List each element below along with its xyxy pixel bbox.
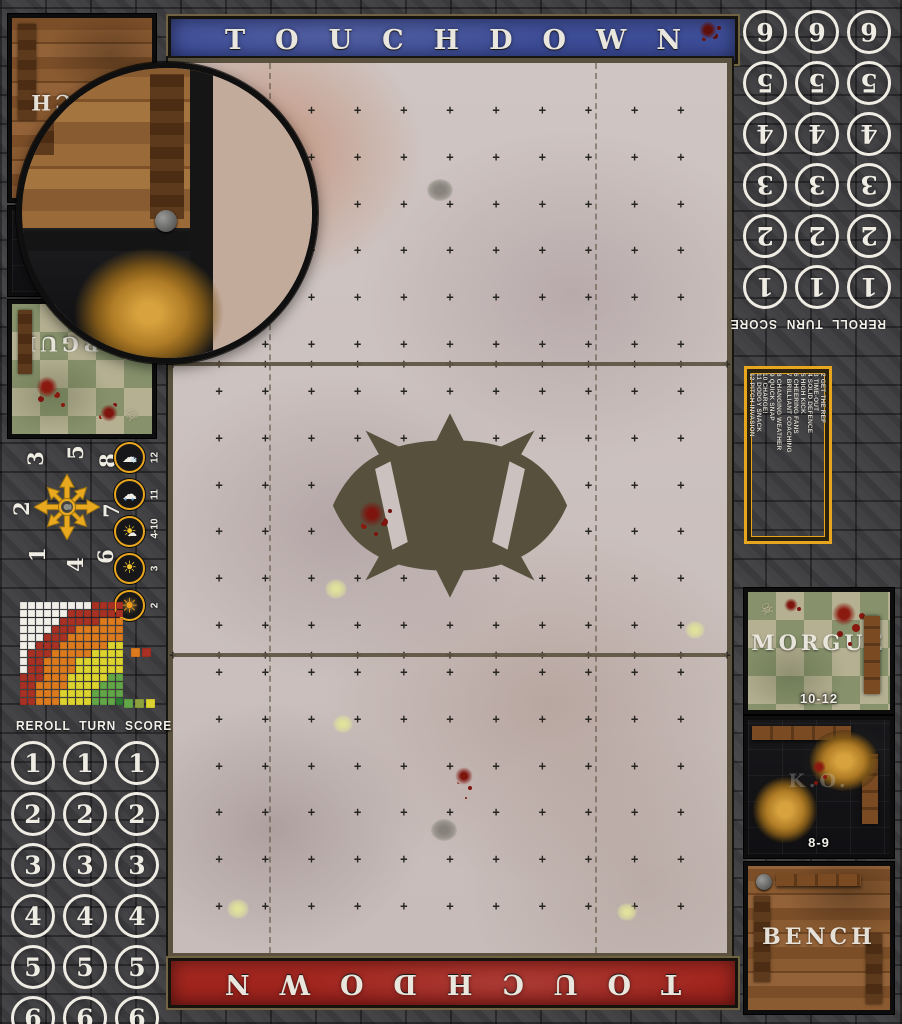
pass-range-cell xyxy=(116,642,123,649)
grid-cross: + xyxy=(631,760,638,772)
grid-cross: + xyxy=(354,760,361,772)
pass-range-cell xyxy=(52,618,59,625)
legend-swatch xyxy=(135,699,144,708)
tracker-circle-1: 1 xyxy=(63,741,107,785)
pass-range-cell xyxy=(116,626,123,633)
grid-cross: + xyxy=(216,853,223,865)
grid-cross: + xyxy=(539,338,546,350)
lichen-spot xyxy=(685,621,705,639)
pass-range-cell xyxy=(36,610,43,617)
blood-splat xyxy=(812,760,826,774)
grid-cross: + xyxy=(631,713,638,725)
tracker-circle-3: 3 xyxy=(795,163,839,207)
pass-range-cell xyxy=(108,682,115,689)
legend-swatch xyxy=(131,648,140,657)
pass-range-cell xyxy=(68,698,75,705)
kickoff-entry: 9 QUICK SNAP xyxy=(767,373,774,537)
grid-cross: + xyxy=(216,806,223,818)
pass-range-cell xyxy=(36,634,43,641)
pass-range-cell xyxy=(60,698,67,705)
pass-range-cell xyxy=(92,666,99,673)
stone-mark xyxy=(431,819,457,841)
pass-range-cell xyxy=(28,634,35,641)
grid-cross: + xyxy=(493,338,500,350)
pass-range-cell xyxy=(100,690,107,697)
tracker-circle-1: 1 xyxy=(115,741,159,785)
tracker-circle-3: 3 xyxy=(847,163,891,207)
grid-cross: + xyxy=(677,432,684,444)
pass-range-cell xyxy=(76,690,83,697)
pass-range-cell xyxy=(60,666,67,673)
lichen-spot xyxy=(227,899,249,919)
pass-range-cell xyxy=(68,610,75,617)
grid-cross: + xyxy=(677,572,684,584)
grid-cross: + xyxy=(585,666,592,678)
tracker-circle-4: 4 xyxy=(63,894,107,938)
pass-range-cell xyxy=(108,642,115,649)
pass-range-cell xyxy=(68,650,75,657)
grid-cross: + xyxy=(677,151,684,163)
grid-cross: + xyxy=(677,853,684,865)
grid-cross: + xyxy=(585,338,592,350)
pass-range-cell xyxy=(108,690,115,697)
pass-range-cell xyxy=(44,602,51,609)
grid-cross: + xyxy=(446,666,453,678)
grid-cross: + xyxy=(354,244,361,256)
pass-range-cell xyxy=(60,618,67,625)
pass-range-cell xyxy=(20,682,27,689)
grid-cross: + xyxy=(585,525,592,537)
tracker-circle-4: 4 xyxy=(847,112,891,156)
pass-range-cell xyxy=(44,642,51,649)
grid-cross: + xyxy=(585,244,592,256)
pass-range-cell xyxy=(68,634,75,641)
tracker-circle-3: 3 xyxy=(115,843,159,887)
grid-cross: + xyxy=(493,806,500,818)
touchdown-banner-bottom: TOUCHDOWN xyxy=(168,958,738,1008)
pass-range-cell xyxy=(52,642,59,649)
blood-splat xyxy=(455,767,473,785)
ko-right-range: 8-9 xyxy=(748,835,890,850)
weather-row: ☀3 xyxy=(114,553,162,584)
grid-cross: + xyxy=(539,666,546,678)
grid-cross: + xyxy=(308,806,315,818)
grid-cross: + xyxy=(539,385,546,397)
tracker-circle-5: 5 xyxy=(795,61,839,105)
grid-cross: + xyxy=(446,713,453,725)
pass-range-cell xyxy=(84,666,91,673)
pass-range-cell xyxy=(92,682,99,689)
weather-track: ☁❄12☁∙∙11☀☁4-10☀3☀2 xyxy=(114,442,162,621)
pass-range-cell xyxy=(108,650,115,657)
zoom-detail-circle xyxy=(16,62,318,364)
game-mat: TOUCHDOWN ++++++++++++++++++++++++++++++… xyxy=(0,0,902,1024)
legend-swatch xyxy=(146,699,155,708)
tracker-circle-4: 4 xyxy=(115,894,159,938)
pass-range-cell xyxy=(68,602,75,609)
metal-stud-icon xyxy=(756,874,772,890)
tracker-circle-3: 3 xyxy=(63,843,107,887)
pass-range-cell xyxy=(36,650,43,657)
grid-cross: + xyxy=(216,760,223,772)
pass-range-cell xyxy=(84,650,91,657)
pass-range-cell xyxy=(116,634,123,641)
grid-cross: + xyxy=(539,900,546,912)
pass-range-cell xyxy=(84,618,91,625)
snow-cloud-icon: ☁❄ xyxy=(114,442,145,473)
dugout-morgue-right: MORGUE 10-12 ☠ xyxy=(744,588,894,714)
grid-cross: + xyxy=(585,713,592,725)
grid-cross: + xyxy=(631,104,638,116)
pass-range-cell xyxy=(28,690,35,697)
turn-tracker-right-header: REROLL TURN SCORE xyxy=(748,317,886,332)
pass-range-cell xyxy=(28,674,35,681)
pass-range-cell xyxy=(20,658,27,665)
grid-cross: + xyxy=(677,338,684,350)
throw-in-number-4: 4 xyxy=(63,557,88,572)
tracker-circle-3: 3 xyxy=(743,163,787,207)
tracker-circle-5: 5 xyxy=(63,945,107,989)
pass-range-cell xyxy=(100,666,107,673)
tracker-circle-5: 5 xyxy=(743,61,787,105)
pass-range-cell xyxy=(28,682,35,689)
pass-range-cell xyxy=(60,650,67,657)
grid-cross: + xyxy=(216,432,223,444)
pass-range-cell xyxy=(52,658,59,665)
pass-range-cell xyxy=(52,682,59,689)
tracker-circle-1: 1 xyxy=(743,265,787,309)
grid-cross: + xyxy=(631,291,638,303)
kickoff-entry: 7 BRILLIANT COACHING xyxy=(785,373,792,537)
pass-range-cell xyxy=(76,642,83,649)
lichen-spot xyxy=(325,579,347,599)
grid-cross: + xyxy=(493,713,500,725)
dugout-bench-right: BENCH xyxy=(744,862,894,1014)
grid-cross: + xyxy=(216,900,223,912)
sun-icon: ☀ xyxy=(114,553,145,584)
grid-cross: + xyxy=(446,619,453,631)
grid-cross: + xyxy=(539,619,546,631)
pass-range-cell xyxy=(76,610,83,617)
grid-cross: + xyxy=(354,666,361,678)
pass-range-cell xyxy=(68,666,75,673)
grid-cross: + xyxy=(585,291,592,303)
pass-range-cell xyxy=(100,626,107,633)
touchdown-banner-top: TOUCHDOWN xyxy=(168,16,738,64)
grid-cross: + xyxy=(585,853,592,865)
pass-range-cell xyxy=(100,682,107,689)
grid-cross: + xyxy=(308,432,315,444)
pass-range-cell xyxy=(28,610,35,617)
grid-cross: + xyxy=(631,432,638,444)
grid-cross: + xyxy=(539,853,546,865)
grid-cross: + xyxy=(677,760,684,772)
pass-range-cell xyxy=(76,698,83,705)
pass-range-cell xyxy=(84,698,91,705)
kickoff-event-lines: 2 GET THE REF3 TIME-OUT4 SOLID DEFENCE5 … xyxy=(751,373,825,537)
grid-cross: + xyxy=(493,900,500,912)
grid-cross: + xyxy=(539,760,546,772)
pass-range-cell xyxy=(44,618,51,625)
pass-range-cell xyxy=(100,610,107,617)
blood-splat xyxy=(784,598,798,612)
grid-cross: + xyxy=(400,760,407,772)
pass-range-cell xyxy=(52,626,59,633)
pass-range-cell xyxy=(28,642,35,649)
grid-cross: + xyxy=(677,385,684,397)
grid-cross: + xyxy=(400,338,407,350)
grid-cross: + xyxy=(216,572,223,584)
tracker-circle-6: 6 xyxy=(847,10,891,54)
pass-range-cell xyxy=(36,618,43,625)
tracker-circle-4: 4 xyxy=(743,112,787,156)
turn-tracker-left-circles: 111222333444555666 xyxy=(10,741,160,1024)
grid-cross: + xyxy=(446,806,453,818)
pass-range-cell xyxy=(76,666,83,673)
throw-in-number-5: 5 xyxy=(63,445,88,460)
pass-range-cell xyxy=(28,618,35,625)
pass-range-cell xyxy=(116,690,123,697)
grid-cross: + xyxy=(446,244,453,256)
turn-tracker-left: REROLL TURN SCORE 111222333444555666 xyxy=(10,718,160,1024)
tracker-circle-2: 2 xyxy=(115,792,159,836)
grid-cross: + xyxy=(308,853,315,865)
kickoff-entry: 2 GET THE REF xyxy=(818,373,825,537)
pass-range-cell xyxy=(20,674,27,681)
pass-range-cell xyxy=(60,658,67,665)
grid-cross: + xyxy=(631,198,638,210)
grid-cross: + xyxy=(446,104,453,116)
pass-range-cell xyxy=(20,690,27,697)
grid-cross: + xyxy=(308,713,315,725)
pass-range-cell xyxy=(108,698,115,705)
grid-cross: + xyxy=(446,198,453,210)
grid-cross: + xyxy=(308,385,315,397)
pass-range-cell xyxy=(28,650,35,657)
grid-cross: + xyxy=(585,619,592,631)
pass-range-cell xyxy=(60,602,67,609)
dugout-ko-right: K.O. 8-9 xyxy=(744,716,894,858)
tracker-circle-2: 2 xyxy=(743,214,787,258)
grid-cross: + xyxy=(631,525,638,537)
pass-range-cell xyxy=(60,626,67,633)
grid-cross: + xyxy=(308,666,315,678)
grid-cross: + xyxy=(216,525,223,537)
pass-range-cell xyxy=(20,610,27,617)
weather-row: ☁∙∙11 xyxy=(114,479,162,510)
grid-cross: + xyxy=(631,338,638,350)
pass-range-cell xyxy=(60,642,67,649)
pass-range-cell xyxy=(116,666,123,673)
grid-cross: + xyxy=(400,244,407,256)
pass-range-cell xyxy=(84,642,91,649)
grid-cross: + xyxy=(308,900,315,912)
pass-range-cell xyxy=(100,634,107,641)
grid-cross: + xyxy=(354,104,361,116)
tracker-circle-2: 2 xyxy=(63,792,107,836)
pass-range-cell xyxy=(92,690,99,697)
wood-beam xyxy=(776,874,861,886)
pass-range-cell xyxy=(108,674,115,681)
blood-splat xyxy=(36,376,58,398)
grid-cross: + xyxy=(539,198,546,210)
rain-cloud-icon: ☁∙∙ xyxy=(114,479,145,510)
grid-cross: + xyxy=(631,666,638,678)
grid-cross: + xyxy=(216,619,223,631)
grid-cross: + xyxy=(354,853,361,865)
grid-cross: + xyxy=(216,666,223,678)
pass-range-cell xyxy=(52,698,59,705)
grid-cross: + xyxy=(493,760,500,772)
tracker-circle-2: 2 xyxy=(795,214,839,258)
pass-range-cell xyxy=(44,634,51,641)
grid-cross: + xyxy=(631,479,638,491)
pass-range-cell xyxy=(92,626,99,633)
grid-cross: + xyxy=(308,619,315,631)
grid-cross: + xyxy=(493,666,500,678)
weather-value: 2 xyxy=(150,599,161,613)
pass-range-cell xyxy=(92,658,99,665)
pass-range-cell xyxy=(116,658,123,665)
grid-cross: + xyxy=(493,291,500,303)
turn-tracker-left-header: REROLL TURN SCORE xyxy=(16,718,154,733)
pass-range-cell xyxy=(116,618,123,625)
pass-chart-legend-bottom xyxy=(124,699,155,708)
grid-cross: + xyxy=(354,198,361,210)
pass-range-cell xyxy=(36,658,43,665)
lichen-spot xyxy=(617,903,637,921)
scrimmage-line xyxy=(173,362,727,366)
grid-cross: + xyxy=(677,806,684,818)
tracker-circle-1: 1 xyxy=(795,265,839,309)
grid-cross: + xyxy=(585,479,592,491)
weather-value: 3 xyxy=(150,562,161,576)
weather-value: 11 xyxy=(150,488,161,502)
wood-post xyxy=(864,616,880,694)
grid-cross: + xyxy=(677,244,684,256)
grid-cross: + xyxy=(631,244,638,256)
pass-range-cell xyxy=(36,682,43,689)
grid-cross: + xyxy=(677,291,684,303)
tracker-circle-2: 2 xyxy=(847,214,891,258)
pass-range-cell xyxy=(100,650,107,657)
grid-cross: + xyxy=(354,619,361,631)
zoomed-wood-board xyxy=(150,74,184,219)
pass-range-cell xyxy=(76,658,83,665)
pass-range-cell xyxy=(92,618,99,625)
kickoff-entry: 8 CHANGING WEATHER xyxy=(774,373,781,537)
pass-range-cell xyxy=(100,618,107,625)
pass-range-cell xyxy=(68,618,75,625)
pass-range-cell xyxy=(116,610,123,617)
grid-cross: + xyxy=(446,385,453,397)
pass-range-cell xyxy=(116,682,123,689)
pass-range-cell xyxy=(116,602,123,609)
pass-range-cell xyxy=(36,690,43,697)
pass-range-cell xyxy=(20,602,27,609)
grid-cross: + xyxy=(216,479,223,491)
skeleton-icon: ☠ xyxy=(757,598,777,620)
pass-range-cell xyxy=(68,642,75,649)
pass-range-cell xyxy=(76,634,83,641)
pass-range-cell xyxy=(36,642,43,649)
pass-range-cell xyxy=(108,666,115,673)
pass-range-cell xyxy=(76,626,83,633)
grid-cross: + xyxy=(446,338,453,350)
turn-tracker-right: REROLL TURN SCORE 111222333444555666 xyxy=(742,10,892,332)
pass-range-cell xyxy=(44,666,51,673)
pass-range-cell xyxy=(108,610,115,617)
pass-range-cell xyxy=(60,634,67,641)
pass-range-cell xyxy=(20,642,27,649)
pass-range-cell xyxy=(92,602,99,609)
grid-cross: + xyxy=(631,572,638,584)
scatter-compass-icon xyxy=(34,474,100,540)
grid-cross: + xyxy=(677,479,684,491)
sun-behind-cloud-icon: ☀☁ xyxy=(114,516,145,547)
pass-range-cell xyxy=(92,674,99,681)
pass-range-cell xyxy=(44,658,51,665)
pass-range-cell xyxy=(68,674,75,681)
pass-range-cell xyxy=(76,650,83,657)
pass-range-cell xyxy=(100,642,107,649)
grid-cross: + xyxy=(585,900,592,912)
grid-cross: + xyxy=(354,713,361,725)
pass-chart-legend-top xyxy=(131,648,151,657)
grid-cross: + xyxy=(400,619,407,631)
grid-cross: + xyxy=(631,151,638,163)
pass-range-cell xyxy=(44,610,51,617)
kickoff-event-table: 2 GET THE REF3 TIME-OUT4 SOLID DEFENCE5 … xyxy=(744,366,832,544)
pass-range-cell xyxy=(60,690,67,697)
grid-cross: + xyxy=(400,713,407,725)
zoomed-dugout-border xyxy=(22,228,202,251)
tracker-circle-3: 3 xyxy=(11,843,55,887)
grid-cross: + xyxy=(631,385,638,397)
pass-range-cell xyxy=(68,626,75,633)
grid-cross: + xyxy=(539,151,546,163)
grid-cross: + xyxy=(354,900,361,912)
grid-cross: + xyxy=(446,151,453,163)
pass-range-cell xyxy=(108,602,115,609)
grid-cross: + xyxy=(677,713,684,725)
pass-range-cell xyxy=(68,658,75,665)
pass-range-cell xyxy=(20,618,27,625)
pass-range-cell xyxy=(20,650,27,657)
grid-cross: + xyxy=(400,104,407,116)
pass-range-cell xyxy=(92,610,99,617)
grid-cross: + xyxy=(677,198,684,210)
tracker-circle-5: 5 xyxy=(847,61,891,105)
pass-range-cell xyxy=(52,674,59,681)
pass-range-cell xyxy=(44,682,51,689)
grid-cross: + xyxy=(585,104,592,116)
grid-cross: + xyxy=(308,479,315,491)
pass-range-cell xyxy=(60,610,67,617)
grid-cross: + xyxy=(308,760,315,772)
zoomed-wood-board xyxy=(28,68,54,155)
pass-range-cell xyxy=(28,602,35,609)
pass-range-cell xyxy=(84,690,91,697)
grid-cross: + xyxy=(539,713,546,725)
grid-cross: + xyxy=(539,806,546,818)
grid-cross: + xyxy=(585,806,592,818)
pass-range-cell xyxy=(108,634,115,641)
pass-range-cell xyxy=(76,602,83,609)
throw-in-number-2: 2 xyxy=(9,501,34,516)
weather-row: ☁❄12 xyxy=(114,442,162,473)
grid-cross: + xyxy=(631,853,638,865)
